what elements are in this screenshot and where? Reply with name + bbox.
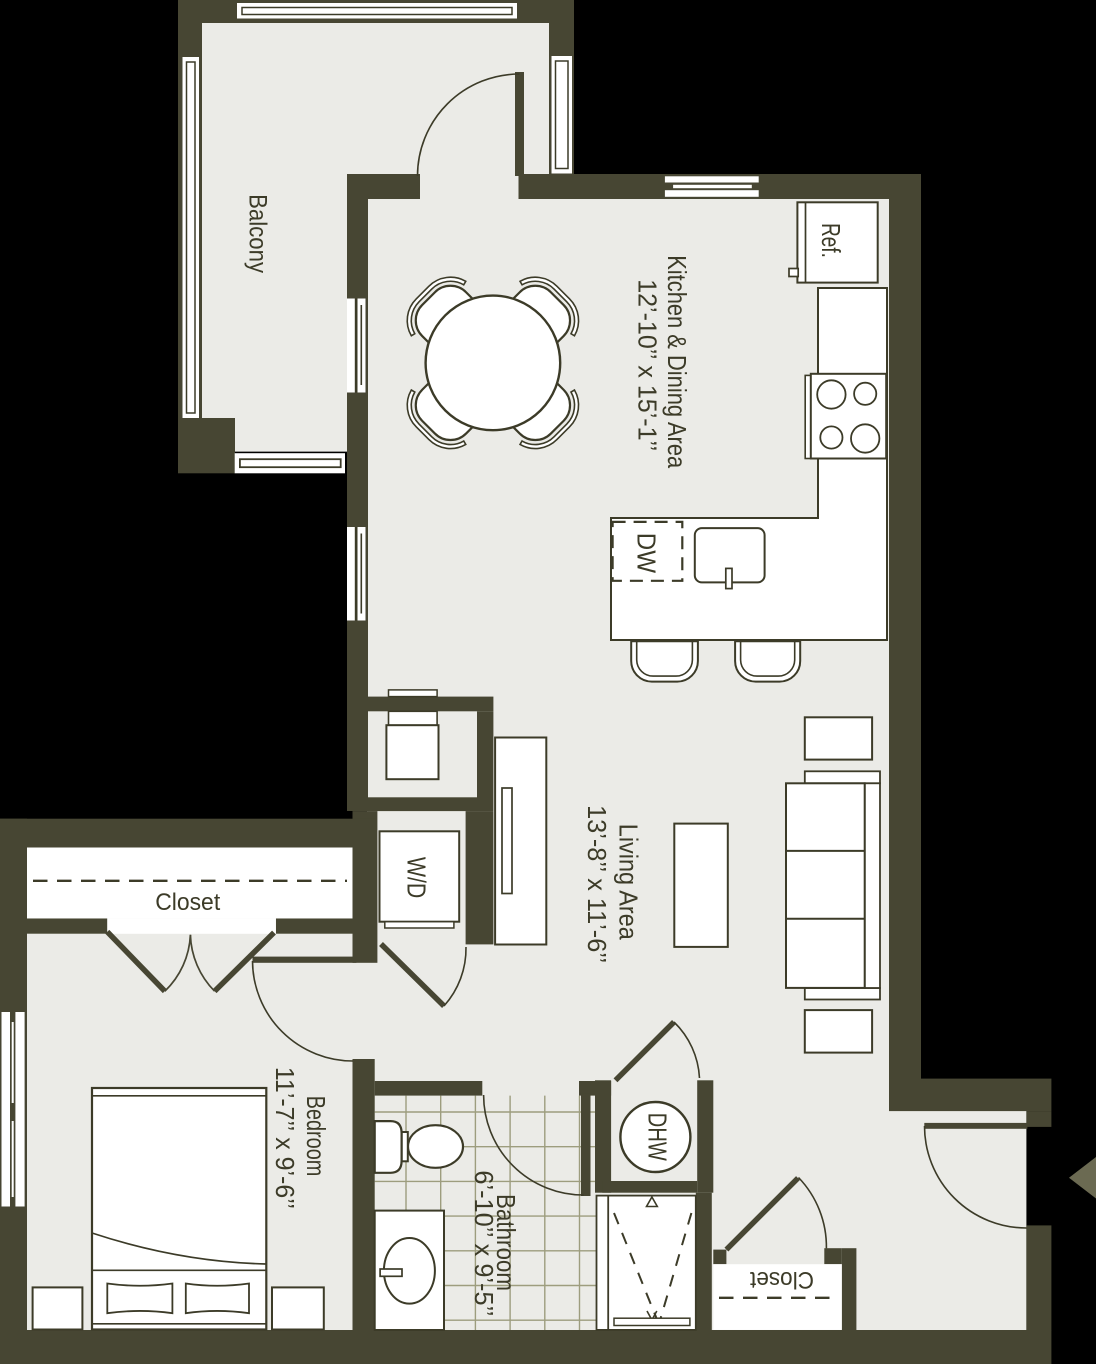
- svg-text:Closet: Closet: [155, 889, 220, 916]
- svg-text:12’-10’’ x 15’-1’’: 12’-10’’ x 15’-1’’: [632, 279, 662, 451]
- svg-text:Closet: Closet: [750, 1266, 814, 1293]
- svg-text:DW: DW: [631, 533, 661, 574]
- svg-text:Kitchen & Dining Area: Kitchen & Dining Area: [662, 255, 692, 468]
- svg-text:Balcony: Balcony: [244, 194, 272, 273]
- svg-text:DHW: DHW: [642, 1113, 672, 1161]
- svg-text:W/D: W/D: [401, 857, 431, 899]
- svg-text:Ref.: Ref.: [816, 223, 846, 258]
- svg-text:13’-8’’ x 11’-6’’: 13’-8’’ x 11’-6’’: [582, 805, 612, 963]
- svg-text:Bedroom: Bedroom: [301, 1096, 331, 1177]
- svg-text:Living Area: Living Area: [613, 824, 643, 940]
- svg-text:11’-7’’ x 9’-6’’: 11’-7’’ x 9’-6’’: [270, 1067, 300, 1209]
- svg-text:6’-10’’ x 9’-5’’: 6’-10’’ x 9’-5’’: [469, 1170, 499, 1316]
